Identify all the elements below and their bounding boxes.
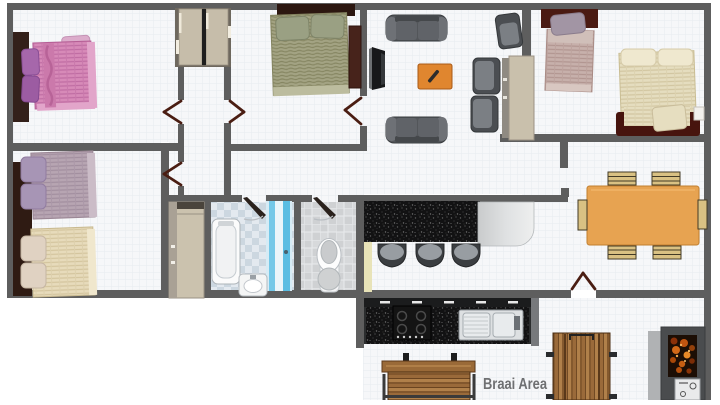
svg-text:Braai Area: Braai Area bbox=[483, 376, 547, 393]
